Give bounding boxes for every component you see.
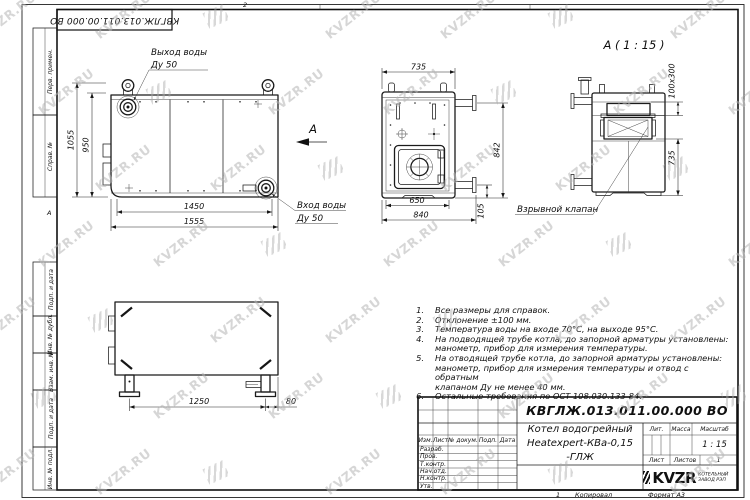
dim-950: 950 (82, 93, 107, 197)
view-arrow-letter: А (308, 122, 317, 136)
frame-col-inv-podl: Инв. № подл. (45, 447, 57, 490)
outlet-du-label: Ду 50 (150, 61, 177, 71)
dim-text-80: 80 (286, 397, 296, 406)
sheets-value: 1 (700, 455, 737, 465)
view-front: 1055 950 1450 1555 Выход воды Ду 50 Вход… (67, 48, 347, 231)
dim-text-1250: 1250 (189, 397, 209, 406)
sig-row-tkontr: Т.контр. (420, 461, 478, 468)
frame-col-label: Инв. № дубл. (48, 314, 55, 355)
side-pipe-bottom (455, 178, 476, 193)
sig-row-nachotd: Нач.отд. (420, 468, 478, 475)
doc-number-top: КВГЛЖ.013.011.00.000 ВО (57, 10, 172, 31)
dim-105: 105 (477, 185, 493, 219)
format-label: Формат А3 (648, 491, 685, 499)
scale-label: Масштаб (692, 423, 737, 435)
valve-callout-label: Взрывной клапан (517, 205, 599, 215)
inlet-callout: Вход воды Ду 50 (272, 194, 346, 224)
note-number: 5. (400, 354, 424, 392)
title-product-name: Котел водогрейный Heatexpert-КВа-0,15 -Г… (517, 423, 643, 465)
dim-735-detail: 735 (656, 139, 683, 196)
copy-number: 1 (556, 491, 560, 499)
dim-text-1555: 1555 (184, 217, 204, 226)
bolt-dots (139, 101, 257, 192)
zone-marker-left: А (47, 209, 51, 217)
note-number: 4. (400, 335, 424, 354)
note-item: 4.На подводящей трубе котла, до запорной… (400, 335, 730, 354)
note-text: На отводящей трубе котла, до запорной ар… (435, 354, 730, 392)
signature-rows: Разраб. Пров. Т.контр. Нач.отд. Н.контр.… (420, 446, 478, 490)
logo-cell: KVZR КОТЕЛЬНЫЙ ЗАВОД РЭП (643, 465, 737, 490)
note-item: 5.На отводящей трубе котла, до запорной … (400, 354, 730, 392)
copied-label: Копировал (575, 491, 612, 499)
view-detail: А ( 1 : 15 ) 100x300 735 Взрывной клапан (515, 38, 683, 215)
note-number: 6. (400, 392, 424, 402)
dim-840: 840 (382, 195, 476, 224)
dim-80: 80 (266, 397, 298, 407)
frame-col-label: Взам. инв. № (48, 351, 55, 392)
plan-body-outline (115, 302, 278, 375)
frame-col-label: Справ. № (48, 141, 55, 170)
view-direction-arrow: А (296, 122, 327, 146)
scale-value: 1 : 15 (692, 435, 737, 455)
mass-label: Масса (670, 423, 692, 435)
drawing-sheet: 1055 950 1450 1555 Выход воды Ду 50 Вход… (0, 0, 750, 500)
detail-pipe-top (571, 78, 592, 109)
detail-pipe-bottom (571, 175, 592, 190)
lifting-eye-left (122, 80, 134, 95)
note-text: На подводящей трубе котла, до запорной а… (435, 335, 728, 354)
explosion-valve (601, 114, 656, 139)
sig-row-nkontr: Н.контр. (420, 475, 478, 482)
frame-col-vzam-inv: Взам. инв. № (45, 353, 57, 390)
sig-row-razrab: Разраб. (420, 446, 478, 453)
burner-flange (407, 154, 433, 180)
frame-col-inv-dubl: Инв. № дубл. (45, 316, 57, 353)
hdr-podp: Подп. (478, 435, 498, 446)
dim-text-105: 105 (477, 203, 486, 218)
support-legs (120, 375, 276, 397)
door-bolt-dots (390, 102, 446, 186)
dim-text-842: 842 (493, 142, 502, 157)
hdr-list: Лист (433, 435, 448, 446)
outlet-flange (117, 96, 139, 118)
frame-col-podp-data-2: Подп. и дата (45, 390, 57, 447)
frame-col-sprav-no: Справ. № (45, 115, 57, 197)
dim-text-735: 735 (411, 63, 426, 72)
inlet-flange (243, 177, 277, 199)
view-plan: 1250 80 (109, 302, 298, 411)
dim-100x300: 100x300 (651, 63, 683, 115)
dim-735-side: 735 (382, 63, 455, 90)
doc-number-top-text: КВГЛЖ.013.011.00.000 ВО (50, 15, 179, 25)
dim-842: 842 (455, 103, 508, 198)
arrow-head-icon (296, 138, 309, 146)
zone-marker-top: 2 (243, 1, 247, 9)
frame-col-podp-data-1: Подп. и дата (45, 262, 57, 316)
outlet-label: Выход воды (151, 48, 207, 58)
dim-text-650: 650 (409, 196, 424, 205)
lit-label: Лит. (643, 423, 670, 435)
hdr-data: Дата (498, 435, 517, 446)
kvzr-logo-sub2: ЗАВОД РЭП (698, 478, 728, 483)
dim-text-840: 840 (413, 211, 428, 220)
frame-col-perv-primen: Перв. примен. (45, 28, 57, 115)
frame-col-label: Инв. № подл. (48, 448, 55, 489)
kvzr-logo-text: KVZR (652, 469, 696, 487)
inlet-label: Вход воды (297, 201, 346, 211)
dim-text-950: 950 (82, 137, 91, 152)
lifting-eye-right (262, 80, 274, 95)
sig-row-prov: Пров. (420, 453, 478, 460)
boiler-body-outline (111, 95, 278, 197)
inlet-du-label: Ду 50 (296, 214, 323, 224)
side-pipe-top (455, 96, 476, 111)
sig-row-utv: Утв. (420, 483, 478, 490)
sheet-label: Лист (643, 455, 670, 465)
detail-view-title: А ( 1 : 15 ) (603, 38, 665, 52)
kvzr-logo-subtitle: КОТЕЛЬНЫЙ ЗАВОД РЭП (698, 472, 728, 483)
hdr-izm: Изм. (418, 435, 433, 446)
valve-callout: Взрывной клапан (515, 127, 648, 215)
hdr-doc: № докум. (448, 435, 478, 446)
view-side: 735 842 105 650 840 (382, 63, 508, 225)
dim-text-100x300: 100x300 (668, 63, 677, 98)
dim-text-735-detail: 735 (668, 150, 677, 165)
frame-col-label: Подп. и дата (48, 269, 55, 310)
frame-col-label: Перв. примен. (48, 49, 55, 94)
kvzr-logo-mark-icon (643, 471, 650, 484)
notes: 1.Все размеры для справок. 2.Отклонение … (400, 306, 730, 402)
dim-1450: 1450 (117, 199, 272, 216)
outlet-callout: Выход воды Ду 50 (134, 48, 208, 100)
title-doc-number: КВГЛЖ.013.011.00.000 ВО (517, 397, 737, 423)
dim-text-1055: 1055 (67, 130, 76, 150)
dim-text-1450: 1450 (184, 202, 204, 211)
frame-col-label: Подп. и дата (48, 398, 55, 439)
sheets-label: Листов (670, 455, 700, 465)
